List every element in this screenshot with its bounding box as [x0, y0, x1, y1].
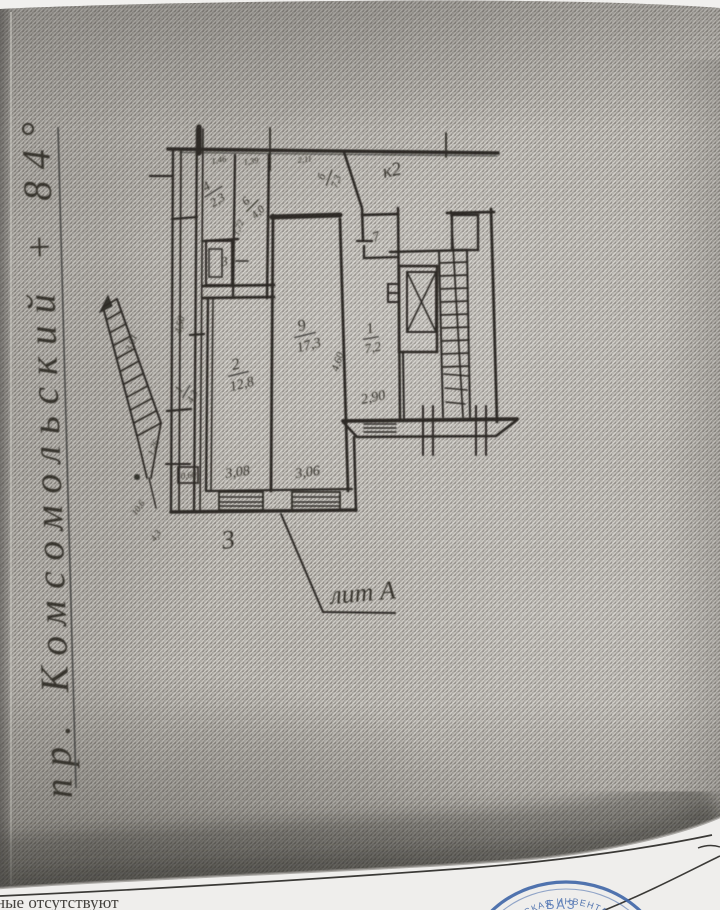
svg-text:лит А: лит А	[327, 575, 397, 610]
svg-text:2,11: 2,11	[297, 153, 313, 165]
svg-text:БАЗ: БАЗ	[546, 897, 577, 910]
svg-text:7,2: 7,2	[363, 338, 382, 356]
svg-text:0,60: 0,60	[180, 469, 197, 481]
